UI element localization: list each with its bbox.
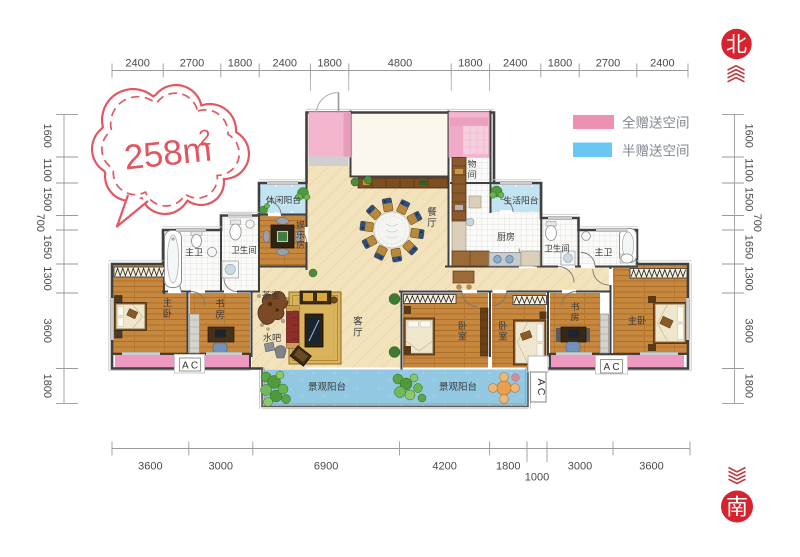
svg-text:2400: 2400: [503, 58, 527, 70]
svg-text:1300: 1300: [743, 266, 755, 290]
svg-text:1500: 1500: [41, 187, 53, 211]
svg-text:主卧: 主卧: [163, 297, 173, 320]
svg-text:主卧: 主卧: [627, 315, 647, 327]
svg-text:4200: 4200: [432, 461, 456, 473]
svg-text:3600: 3600: [639, 461, 663, 473]
svg-text:2700: 2700: [596, 58, 620, 70]
svg-text:北: 北: [726, 34, 747, 57]
svg-text:2: 2: [197, 125, 212, 151]
svg-text:书房: 书房: [215, 299, 225, 321]
svg-text:娱乐房: 娱乐房: [296, 220, 305, 250]
svg-text:1100: 1100: [41, 158, 53, 182]
svg-text:3600: 3600: [743, 319, 755, 343]
svg-text:700: 700: [34, 214, 46, 232]
svg-text:1000: 1000: [525, 472, 549, 484]
svg-text:1500: 1500: [743, 187, 755, 211]
svg-text:A C: A C: [603, 362, 619, 373]
svg-text:1800: 1800: [548, 58, 572, 70]
svg-text:厨房: 厨房: [497, 231, 515, 242]
svg-text:全赠送空间: 全赠送空间: [622, 115, 690, 131]
svg-text:1300: 1300: [41, 266, 53, 290]
svg-text:2700: 2700: [180, 58, 204, 70]
svg-text:餐厅: 餐厅: [427, 206, 437, 229]
svg-text:A C: A C: [535, 379, 547, 396]
svg-text:3600: 3600: [138, 461, 162, 473]
svg-text:物间: 物间: [468, 158, 477, 179]
svg-text:1800: 1800: [743, 374, 755, 398]
svg-text:1650: 1650: [743, 235, 755, 259]
svg-text:700: 700: [751, 214, 763, 232]
svg-text:A C: A C: [182, 360, 198, 371]
svg-text:卫生间: 卫生间: [544, 244, 570, 254]
svg-text:客厅: 客厅: [353, 316, 363, 339]
svg-text:1800: 1800: [41, 374, 53, 398]
svg-text:卧室: 卧室: [498, 320, 507, 342]
svg-text:1600: 1600: [41, 123, 53, 147]
svg-text:3000: 3000: [568, 461, 592, 473]
svg-text:2400: 2400: [650, 58, 674, 70]
svg-text:1800: 1800: [496, 461, 520, 473]
svg-text:休闲阳台: 休闲阳台: [266, 194, 301, 205]
svg-text:卫生间: 卫生间: [231, 245, 257, 255]
svg-text:2400: 2400: [125, 58, 149, 70]
svg-text:1650: 1650: [41, 235, 53, 259]
svg-text:卧室: 卧室: [458, 320, 467, 342]
svg-text:6900: 6900: [314, 461, 338, 473]
svg-text:水吧: 水吧: [263, 332, 281, 343]
svg-text:1600: 1600: [743, 123, 755, 147]
svg-text:1100: 1100: [743, 158, 755, 182]
svg-text:景观阳台: 景观阳台: [308, 381, 346, 393]
svg-text:4800: 4800: [388, 58, 412, 70]
svg-text:景观阳台: 景观阳台: [439, 381, 477, 393]
svg-text:1800: 1800: [317, 58, 341, 70]
svg-text:主卫: 主卫: [594, 247, 612, 258]
svg-text:书房: 书房: [570, 302, 579, 323]
svg-text:1800: 1800: [458, 58, 482, 70]
svg-text:茶室: 茶室: [262, 290, 280, 301]
svg-text:半赠送空间: 半赠送空间: [622, 144, 690, 159]
svg-text:1800: 1800: [228, 58, 252, 70]
svg-text:2400: 2400: [273, 58, 297, 70]
svg-text:3000: 3000: [209, 461, 233, 473]
svg-text:南: 南: [726, 495, 748, 520]
svg-text:3600: 3600: [41, 319, 53, 343]
svg-text:生活阳台: 生活阳台: [503, 195, 538, 206]
svg-text:主卫: 主卫: [185, 247, 203, 258]
